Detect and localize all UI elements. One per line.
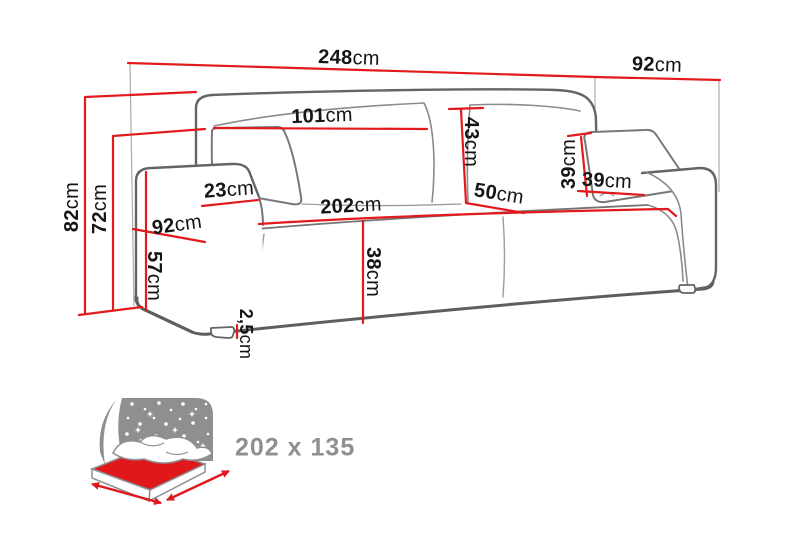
dim-total-depth-value: 92 [632,53,656,76]
dim-seat-width-label: 202cm [320,194,383,217]
dim-back-height-value: 72 [89,211,111,234]
dim-armrest-top-width-value: 23 [203,179,227,203]
dim-back-cushion-height-value: 43 [460,117,482,140]
seat-front-edge [257,205,648,229]
dim-total-depth-label: 92cm [632,54,683,76]
dim-back-height-unit: cm [89,184,111,211]
dim-total-width-value: 248 [318,46,353,69]
diagram-canvas [0,0,800,533]
dim-total-height-value: 82 [61,209,83,232]
sleeping-area-size-label: 202 x 135 [235,436,355,461]
dim-line-back-cushion-width [214,128,427,129]
dim-armrest-height-value: 57 [143,251,165,274]
dim-total-width-unit: cm [352,47,380,70]
dim-seat-depth-unit: cm [495,183,525,209]
dim-armrest-height-unit: cm [143,274,165,301]
dim-total-width-label: 248cm [318,47,380,69]
dim-pillow-height-unit: cm [558,139,580,166]
dim-seat-height-unit: cm [362,270,384,297]
dim-total-height-unit: cm [61,182,83,209]
sleeping-area-size-value: 202 x 135 [235,434,355,462]
dim-back-height-label: 72cm [90,184,110,234]
dim-seat-height-label: 38cm [363,247,383,297]
dim-arm-side-depth-unit: cm [173,211,203,237]
dim-seat-width-value: 202 [320,195,355,219]
sofa-outline-drawing [136,89,716,338]
front-seam-center [503,217,505,297]
dim-pillow-height-label: 39cm [559,139,579,189]
dim-total-depth-unit: cm [654,54,682,77]
bed-sleeping-area-icon [92,398,229,503]
dim-leg-height-value: 2,5 [236,309,256,335]
dim-back-cushion-height-label: 43cm [461,117,481,167]
dim-seat-width-unit: cm [354,193,382,216]
dim-seat-height-value: 38 [362,247,384,270]
dim-pillow-width-unit: cm [604,170,632,193]
dim-back-cushion-height-unit: cm [460,140,482,167]
sofa-leg-right [679,285,695,293]
sofa-leg-left [211,327,234,338]
furniture-dimension-diagram: 248cm 92cm 101cm 43cm 23cm 50cm 39cm 39c… [0,0,800,533]
dim-pillow-width-label: 39cm [581,170,632,193]
bed-headboard-crescent [100,400,116,465]
seat-right-edge [648,205,683,281]
dim-pillow-height-value: 39 [558,166,580,189]
dim-back-cushion-width-value: 101 [291,105,326,128]
dim-armrest-height-label: 57cm [144,251,164,301]
dim-arm-side-depth-value: 92 [151,214,177,239]
dim-armrest-top-width-label: 23cm [203,178,254,201]
dim-armrest-top-width-unit: cm [226,177,255,201]
dim-leg-height-label: 2,5cm [237,309,255,360]
dim-pillow-width-value: 39 [581,169,605,192]
dim-total-height-label: 82cm [62,182,82,232]
dim-back-cushion-width-unit: cm [325,104,353,127]
dim-back-cushion-width-label: 101cm [291,105,353,127]
dim-leg-height-unit: cm [236,335,256,360]
back-cushion-right-top [470,104,580,111]
